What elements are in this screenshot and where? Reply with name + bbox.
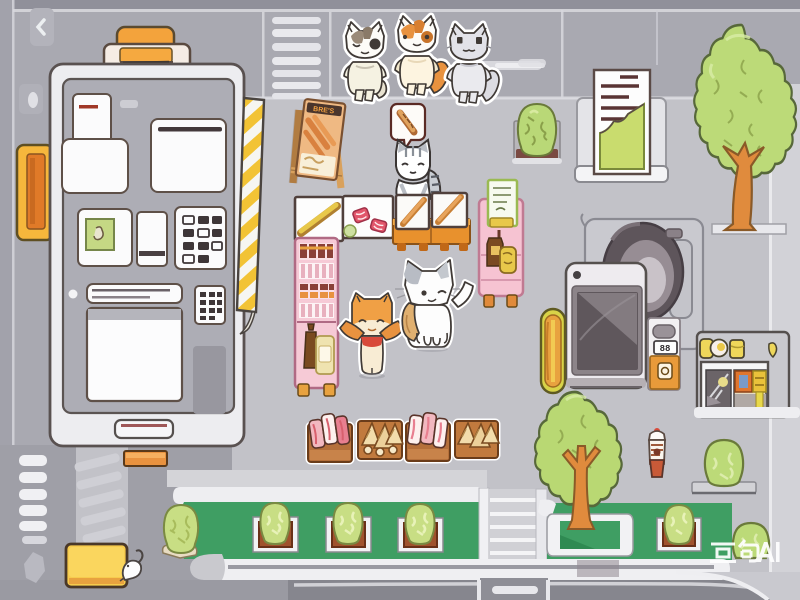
svg-text:88: 88 bbox=[660, 344, 671, 354]
